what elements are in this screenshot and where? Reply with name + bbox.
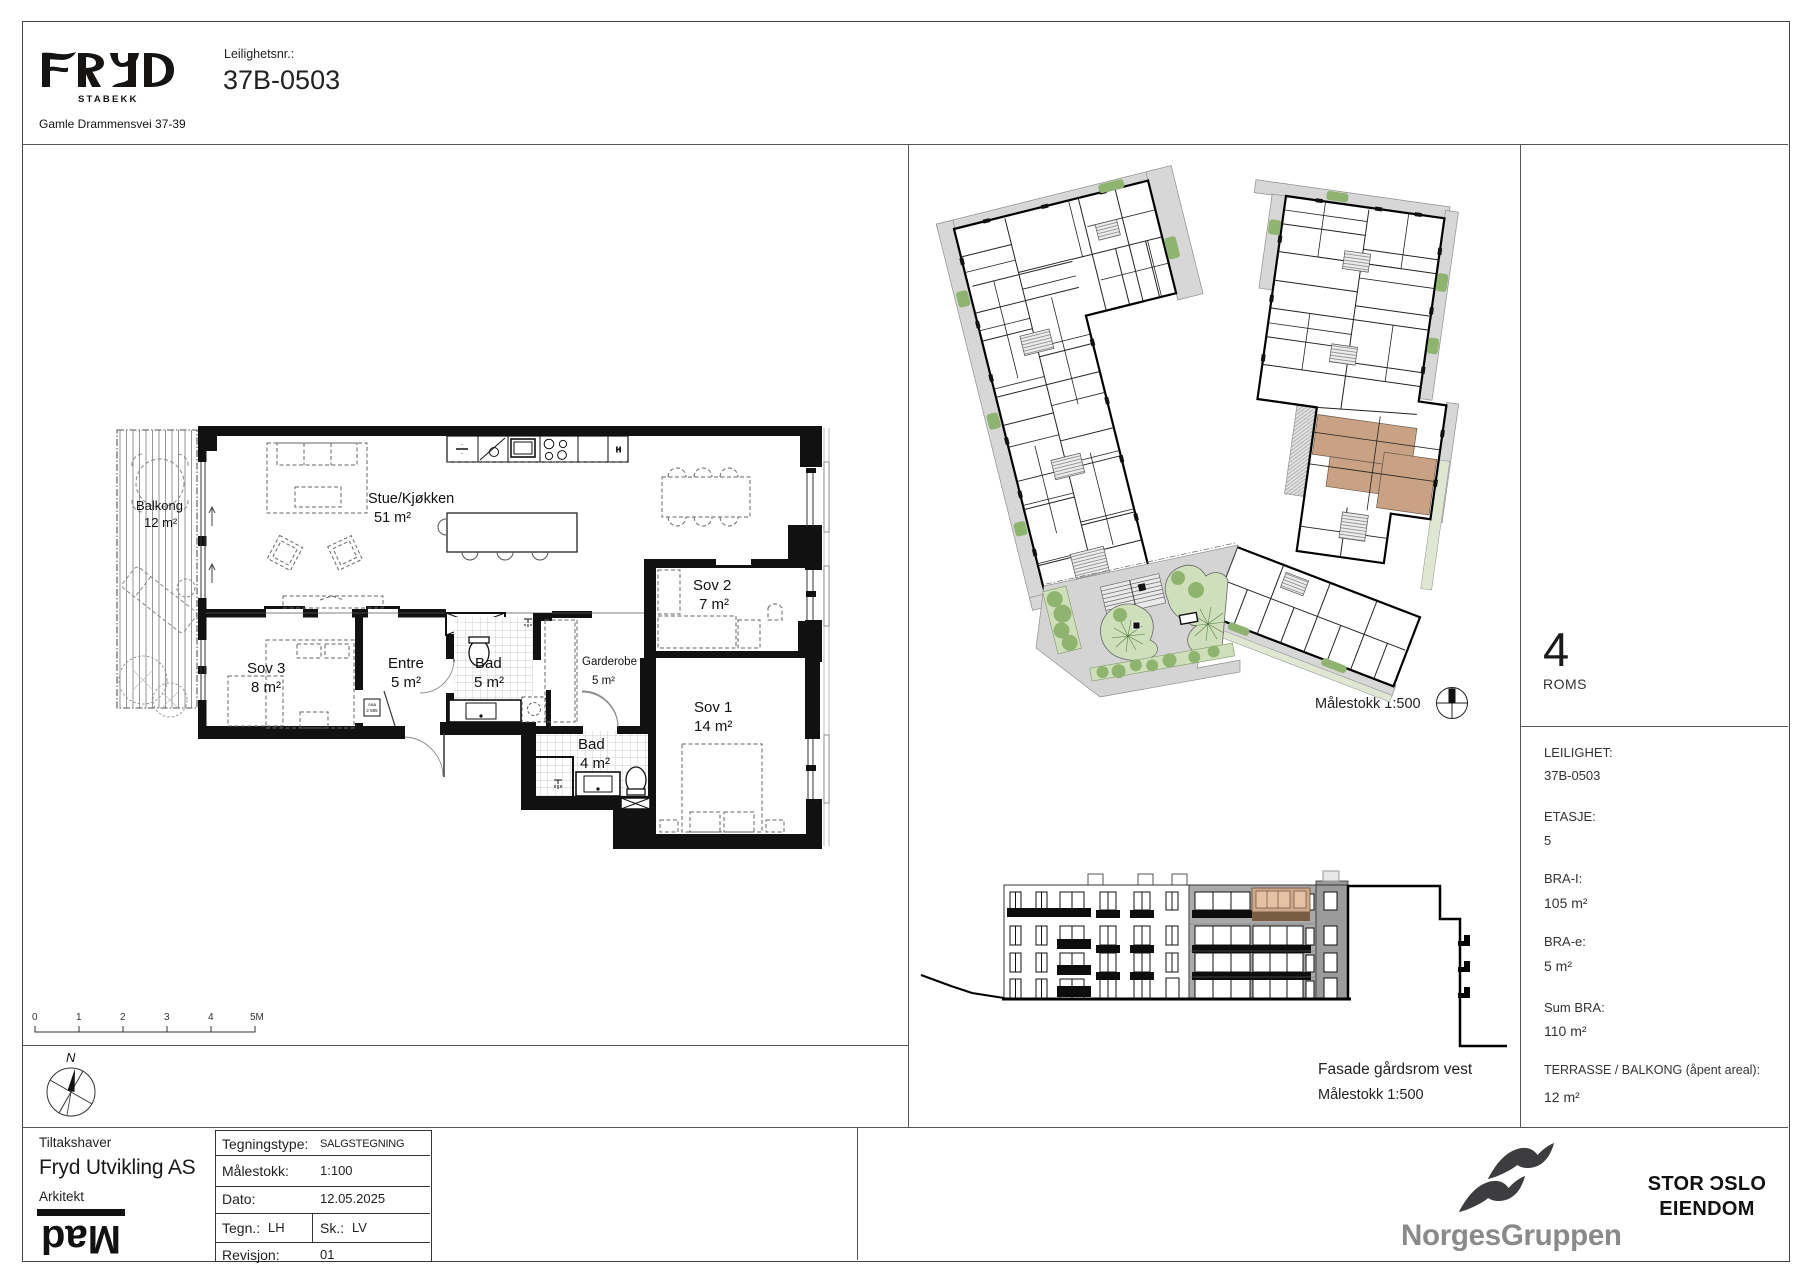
svg-text:Garderobe: Garderobe — [582, 656, 637, 668]
svg-text:H: H — [616, 447, 621, 454]
svg-text:12 m²: 12 m² — [144, 515, 178, 530]
svg-text:2: 2 — [120, 1012, 126, 1023]
svg-text:7 m²: 7 m² — [699, 596, 729, 613]
svg-text:51 m²: 51 m² — [374, 510, 411, 526]
svg-text:NorgesGruppen: NorgesGruppen — [1401, 1219, 1622, 1252]
svg-text:14 m²: 14 m² — [694, 718, 732, 735]
svg-text:5 m²: 5 m² — [592, 675, 615, 687]
svg-text:1: 1 — [76, 1012, 82, 1023]
svg-text:0: 0 — [32, 1012, 38, 1023]
svg-text:Aaa: Aaa — [368, 702, 377, 707]
svg-text:Bad: Bad — [475, 655, 502, 672]
svg-text:8 m²: 8 m² — [251, 679, 281, 696]
svg-text:4: 4 — [208, 1012, 214, 1023]
svg-text:Sov 2: Sov 2 — [693, 577, 731, 594]
svg-text:2 585: 2 585 — [366, 708, 378, 713]
svg-text:5 m²: 5 m² — [474, 674, 504, 691]
svg-text:Sov 1: Sov 1 — [694, 699, 732, 716]
svg-text:Sov 3: Sov 3 — [247, 660, 285, 677]
svg-text:4 m²: 4 m² — [580, 755, 610, 772]
svg-text:Entre: Entre — [388, 655, 424, 672]
svg-text:5 m²: 5 m² — [391, 674, 421, 691]
svg-text:Balkong: Balkong — [136, 498, 183, 513]
svg-text:3: 3 — [164, 1012, 170, 1023]
svg-text:N: N — [66, 1050, 76, 1065]
svg-text:Bad: Bad — [578, 736, 605, 753]
svg-text:5M: 5M — [250, 1012, 264, 1023]
svg-text:Stue/Kjøkken: Stue/Kjøkken — [368, 491, 454, 507]
